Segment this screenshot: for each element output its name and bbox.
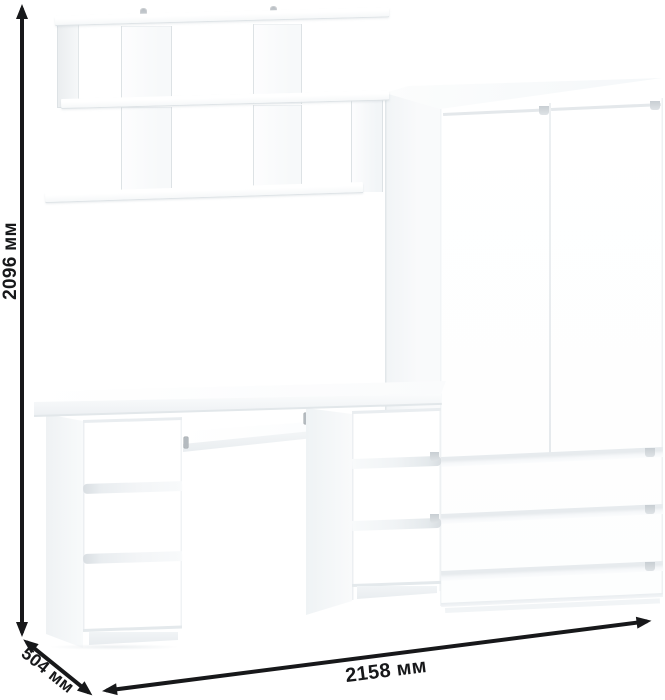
- shelf-right-end-panel: [351, 100, 383, 192]
- desk-left-pedestal-front: [83, 417, 182, 632]
- desk-right-pedestal-side: [306, 405, 352, 615]
- shelf-bottom-board: [45, 182, 363, 202]
- width-dimension-arrow: [102, 614, 651, 698]
- dimension-line: [19, 8, 23, 633]
- desk-left-pedestal-side: [46, 412, 83, 648]
- desk-left-pedestal-ground-shadow: [48, 644, 180, 650]
- desk-right-pedestal-plinth: [357, 586, 437, 599]
- desk-right-drawer-handle-notch: [430, 514, 439, 523]
- wardrobe-front: [440, 98, 663, 610]
- shelf-divider: [121, 107, 172, 196]
- shelf-divider: [121, 26, 172, 105]
- shelf-top-board: [55, 7, 389, 25]
- wardrobe-door-gap: [549, 103, 551, 455]
- wardrobe-door-left-handle-notch: [539, 106, 549, 115]
- shelf-left-end-panel: [57, 22, 79, 108]
- desk-right-drawer-handle-notch: [430, 452, 439, 461]
- shelf-middle-board: [61, 90, 389, 108]
- wardrobe-door-right-handle-notch: [650, 101, 660, 110]
- furniture-dimension-scene: 2096 мм 504 мм 2158 мм: [0, 0, 665, 700]
- arrowhead-right: [636, 615, 652, 629]
- keyboard-tray-rail-left: [184, 437, 188, 448]
- desk-right-pedestal-front: [352, 408, 441, 600]
- shelf-divider: [253, 105, 302, 193]
- height-dimension-arrow: [15, 5, 29, 636]
- wardrobe-drawer-handle-notch: [645, 448, 655, 457]
- height-dimension-label: 2096 мм: [0, 206, 22, 316]
- wardrobe-drawer-handle-notch: [645, 562, 655, 571]
- wardrobe-drawer-handle-notch: [645, 505, 655, 514]
